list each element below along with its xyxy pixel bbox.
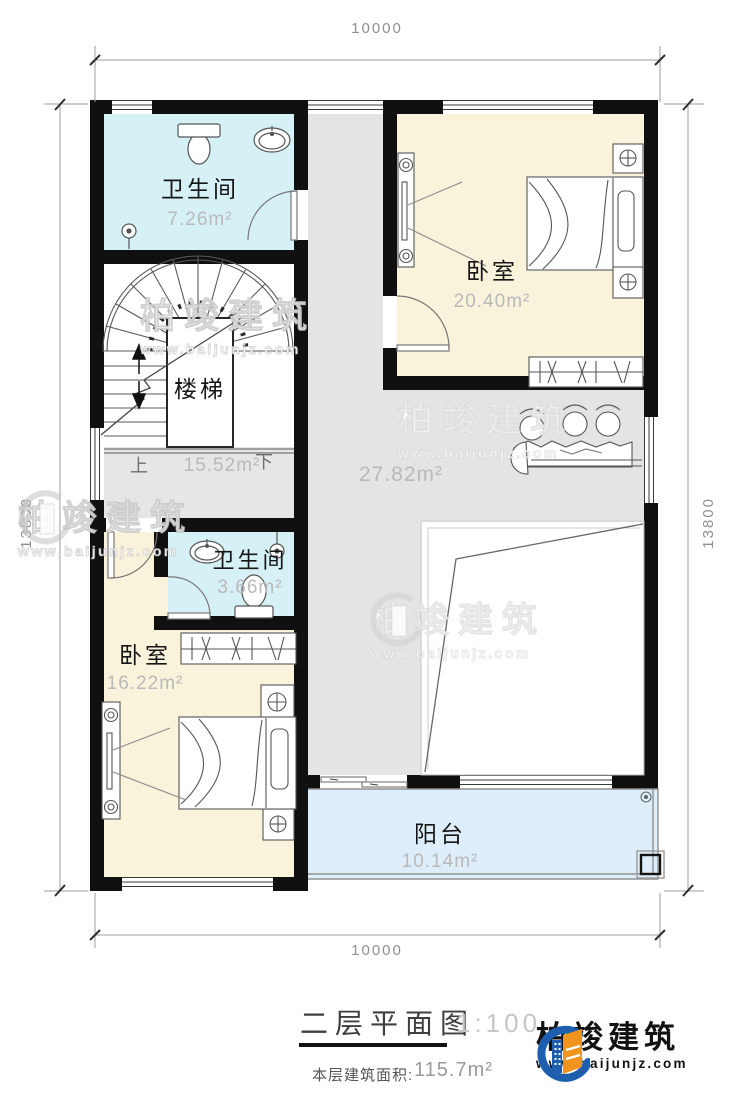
wall — [644, 100, 658, 417]
room-area: 20.40m² — [454, 291, 531, 313]
up-text: 上 — [130, 452, 148, 478]
window — [122, 877, 273, 891]
wall — [90, 250, 308, 264]
watermark-brand: 柏竣建筑 — [140, 288, 316, 339]
room-area: 3.66m² — [212, 577, 287, 599]
wall — [294, 240, 308, 891]
bedroom1-floor — [397, 114, 644, 376]
wall — [612, 775, 658, 789]
room-label-bathroom1: 卫生间 7.26m² — [161, 170, 239, 231]
watermark-text: 柏竣建筑 www.baijunjz.com — [140, 288, 316, 357]
wall — [383, 376, 658, 390]
window — [460, 775, 612, 789]
wall — [152, 100, 308, 114]
room-area: 10.14m² — [402, 851, 479, 873]
window — [112, 100, 152, 114]
wall — [90, 500, 104, 891]
stair-direction-arrows — [133, 345, 145, 408]
company-logo-text: 柏竣建筑 www.baijunjz.com — [536, 1022, 688, 1071]
company-url: www.baijunjz.com — [536, 1056, 688, 1071]
wall — [308, 775, 320, 789]
balcony-floor — [308, 789, 658, 879]
floor-plan-sheet: 卫生间 7.26m² 卧室 20.40m² 楼梯 上 15.52m² 下 27.… — [0, 0, 750, 1095]
total-area-value: 115.7m² — [414, 1059, 493, 1082]
sliding-door-slot — [320, 775, 407, 789]
title-underline — [299, 1043, 447, 1047]
company-logo: 柏竣建筑 www.baijunjz.com — [536, 1022, 688, 1071]
wall — [90, 877, 122, 891]
dimension-left: 13800 — [18, 497, 35, 549]
void-opening — [421, 521, 644, 775]
window — [90, 428, 104, 500]
wall — [407, 775, 460, 789]
watermark: 柏竣建筑 www.baijunjz.com — [140, 288, 316, 357]
room-name: 楼梯 — [174, 370, 226, 404]
wall — [383, 100, 443, 114]
stair-down-label: 下 — [255, 448, 273, 474]
wall — [90, 518, 106, 532]
stair-up-label: 上 — [130, 452, 148, 478]
room-name: 卧室 — [107, 636, 184, 670]
hall-floor-strip — [308, 520, 420, 775]
sheet-scale: 1:100 — [456, 1008, 541, 1039]
hall-floor-mid — [308, 390, 644, 520]
dimension-right: 13800 — [700, 497, 717, 549]
hall-area-label: 27.82m² — [359, 463, 443, 487]
room-name: 卫生间 — [212, 543, 287, 575]
total-area-label: 本层建筑面积: — [312, 1064, 413, 1085]
dimension-top: 10000 — [351, 20, 403, 37]
room-area: 27.82m² — [359, 463, 443, 487]
wall — [273, 877, 308, 891]
wall — [294, 114, 308, 190]
window — [443, 100, 593, 114]
room-label-bedroom2: 卧室 16.22m² — [107, 636, 184, 695]
wall — [383, 114, 397, 296]
room-label-stairs: 楼梯 — [174, 370, 226, 404]
wall — [162, 518, 308, 532]
wall — [644, 503, 658, 789]
watermark-url: www.baijunjz.com — [140, 341, 316, 357]
window — [644, 417, 658, 503]
wall — [154, 532, 168, 577]
room-name: 卫生间 — [161, 170, 239, 204]
wall — [90, 100, 104, 428]
window — [308, 100, 383, 114]
stair-area-label: 15.52m² — [184, 455, 261, 477]
room-area: 7.26m² — [161, 209, 239, 231]
hall-floor-corridor — [308, 114, 383, 390]
down-text: 下 — [255, 448, 273, 474]
room-name: 卧室 — [454, 252, 531, 286]
room-area: 15.52m² — [184, 455, 261, 477]
room-label-bedroom1: 卧室 20.40m² — [454, 252, 531, 313]
room-label-bathroom2: 卫生间 3.66m² — [212, 543, 287, 599]
spiral-stair-fan — [103, 256, 293, 354]
dimension-bottom: 10000 — [351, 942, 403, 959]
sheet-title: 二层平面图 — [300, 1002, 475, 1042]
room-name: 阳台 — [402, 815, 479, 849]
room-area: 16.22m² — [107, 673, 184, 695]
room-label-balcony: 阳台 10.14m² — [402, 815, 479, 873]
company-name: 柏竣建筑 — [536, 1022, 688, 1053]
wall — [154, 616, 308, 630]
